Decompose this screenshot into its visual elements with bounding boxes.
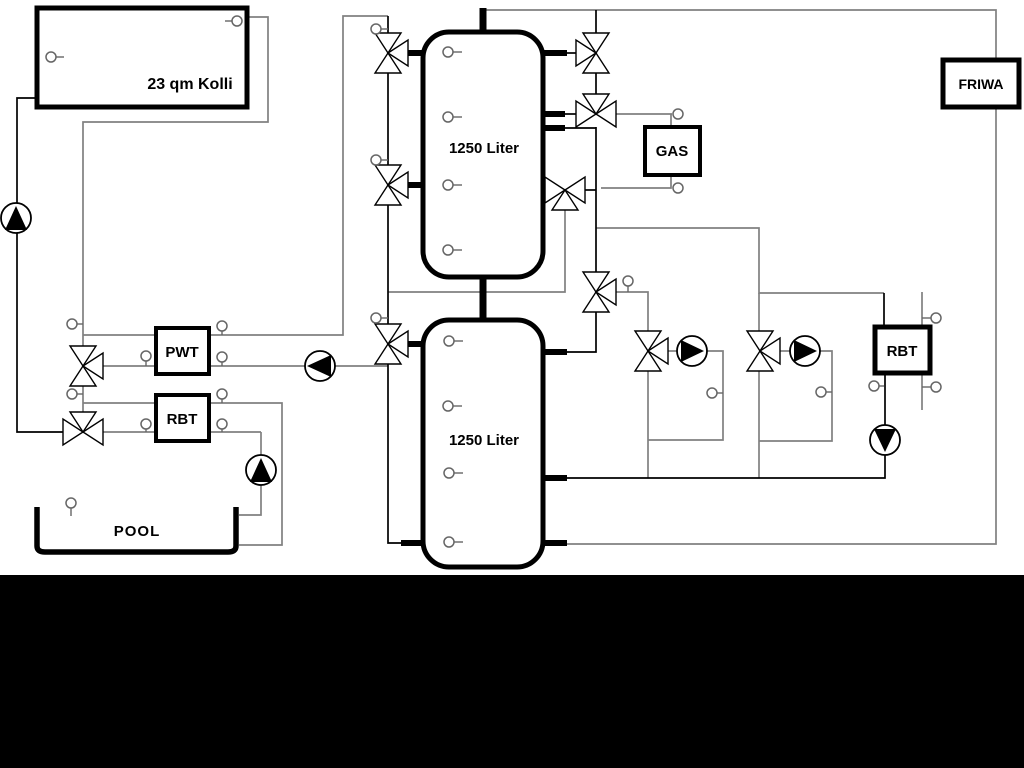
sensor-pool-icon	[66, 498, 76, 508]
sensor-collector-left-icon	[46, 52, 56, 62]
pump-pool	[246, 455, 276, 485]
sensor-tank1-1-icon	[443, 47, 453, 57]
rbt-right-label: RBT	[887, 343, 918, 360]
sensor-rbt-ret-icon	[217, 419, 227, 429]
pump-solar	[1, 203, 31, 233]
sensor-solar-b-icon	[67, 389, 77, 399]
sensor-rbt-out-icon	[217, 389, 227, 399]
sensor-pwt-ret-icon	[217, 352, 227, 362]
tank2-label: 1250 Liter	[449, 432, 519, 449]
sensor-tank2-1-icon	[444, 336, 454, 346]
sensor-rbt-right-icon	[869, 381, 879, 391]
sensor-col388-top-icon	[371, 24, 381, 34]
sensor-tank1-3-icon	[443, 180, 453, 190]
pump-circuit1	[677, 336, 707, 366]
sensor-distribution-icon	[623, 276, 633, 286]
sensor-tank2-4-icon	[444, 537, 454, 547]
sensor-tank2-2-icon	[443, 401, 453, 411]
sensor-pwt-in-icon	[141, 351, 151, 361]
friwa-label: FRIWA	[958, 76, 1003, 92]
sensor-tank2-3-icon	[444, 468, 454, 478]
gas-label: GAS	[656, 143, 689, 160]
sensor-col388-low-icon	[371, 313, 381, 323]
sensor-circuit2-icon	[816, 387, 826, 397]
footer-black-band	[0, 575, 1024, 768]
sensor-gas-supply-icon	[673, 109, 683, 119]
sensor-gas-return-icon	[673, 183, 683, 193]
sensor-tank1-4-icon	[443, 245, 453, 255]
sensor-heating-flow-icon	[931, 313, 941, 323]
pwt-label: PWT	[165, 344, 198, 361]
sensor-tank1-2-icon	[443, 112, 453, 122]
pump-circuit2	[790, 336, 820, 366]
pool-label: POOL	[114, 523, 161, 540]
hydraulic-diagram: 23 qm Kolli 1250 Liter 1250 Liter GAS FR…	[0, 0, 1024, 768]
sensor-rbt-in-icon	[141, 419, 151, 429]
pump-rbt-right	[870, 425, 900, 455]
schematic-canvas: 23 qm Kolli 1250 Liter 1250 Liter GAS FR…	[0, 0, 1024, 768]
sensor-collector-right-icon	[232, 16, 242, 26]
collector-label: 23 qm Kolli	[147, 76, 232, 93]
sensor-heating-return-icon	[931, 382, 941, 392]
tank1-label: 1250 Liter	[449, 140, 519, 157]
sensor-pwt-out-icon	[217, 321, 227, 331]
sensor-solar-a-icon	[67, 319, 77, 329]
sensor-col388-mid-icon	[371, 155, 381, 165]
rbt-pool-label: RBT	[167, 411, 198, 428]
sensor-circuit1-icon	[707, 388, 717, 398]
pump-pwt	[305, 351, 335, 381]
